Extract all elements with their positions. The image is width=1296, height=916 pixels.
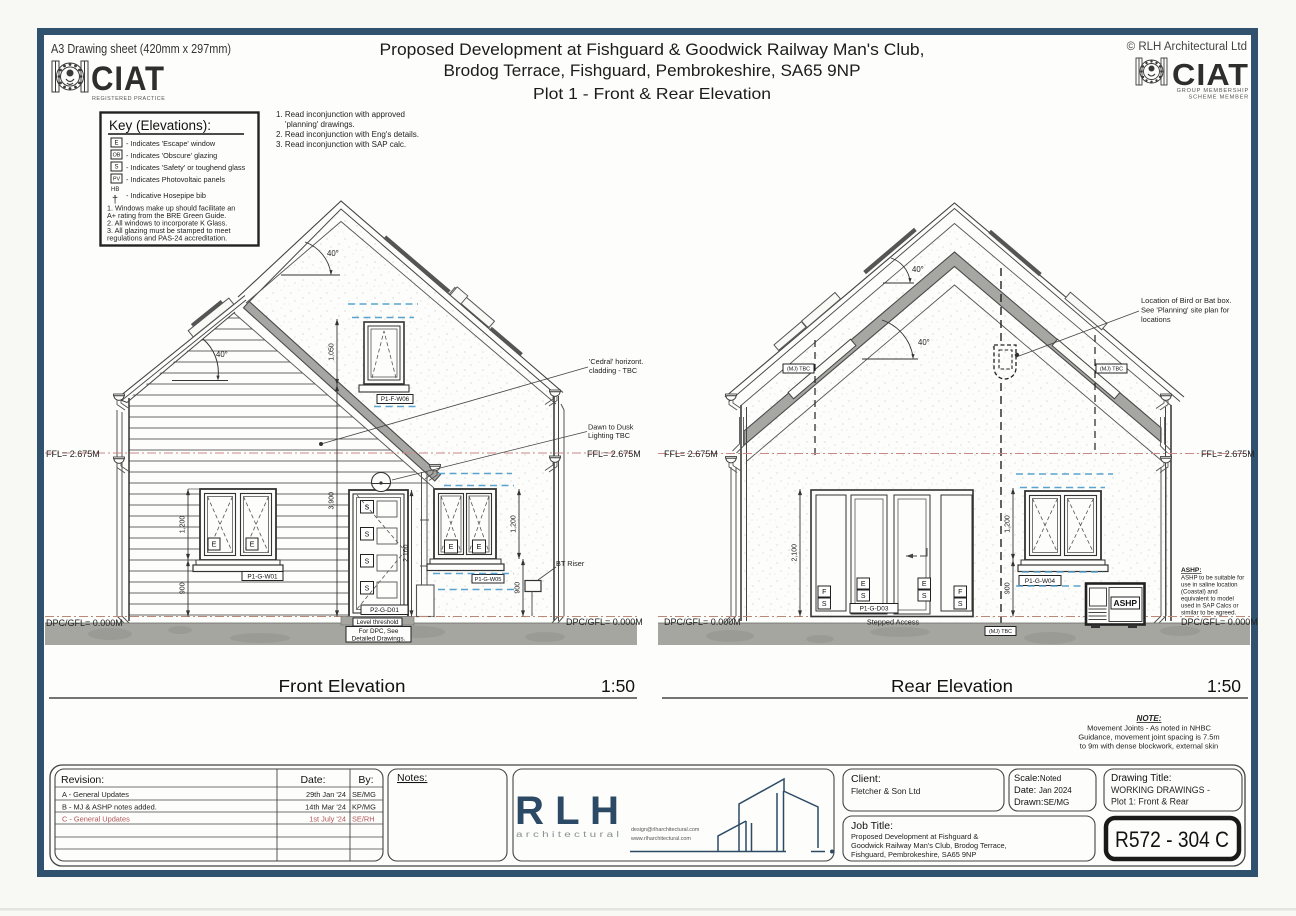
svg-text:Stepped Access: Stepped Access (867, 618, 920, 627)
svg-text:Goodwick Railway Man's Club, B: Goodwick Railway Man's Club, Brodog Terr… (851, 841, 1007, 850)
svg-text:Detailed Drawings.: Detailed Drawings. (352, 636, 406, 643)
svg-text:REGISTERED PRACTICE: REGISTERED PRACTICE (92, 96, 165, 102)
svg-text:design@rlharchitectural.com: design@rlharchitectural.com (631, 827, 700, 833)
svg-text:R572 - 304 C: R572 - 304 C (1115, 827, 1229, 852)
svg-text:Level threshold: Level threshold (357, 619, 400, 626)
svg-text:By:: By: (358, 774, 373, 786)
svg-text:A - General Updates: A - General Updates (62, 790, 129, 799)
svg-text:locations: locations (1141, 315, 1171, 324)
svg-text:ASHP to be suitable for: ASHP to be suitable for (1181, 575, 1244, 582)
svg-text:Fletcher & Son Ltd: Fletcher & Son Ltd (851, 786, 921, 796)
svg-text:C - General Updates: C - General Updates (62, 815, 130, 824)
svg-text:2,100: 2,100 (792, 544, 799, 562)
svg-text:900: 900 (180, 582, 187, 594)
svg-text:BT Riser: BT Riser (556, 559, 585, 568)
svg-text:40°: 40° (912, 265, 924, 274)
svg-text:S: S (861, 593, 866, 600)
svg-text:Rear Elevation: Rear Elevation (891, 676, 1013, 696)
svg-text:P1-F-W06: P1-F-W06 (381, 396, 410, 403)
svg-text:Revision:: Revision: (61, 774, 104, 786)
svg-text:Lighting TBC: Lighting TBC (588, 431, 630, 440)
svg-text:use in saline location: use in saline location (1181, 582, 1238, 589)
svg-text:Proposed Development at Fishgu: Proposed Development at Fishguard & (851, 832, 978, 841)
svg-text:P1-G-W01: P1-G-W01 (247, 573, 278, 580)
svg-text:B - MJ & ASHP notes added.: B - MJ & ASHP notes added. (62, 803, 157, 812)
svg-text:cladding - TBC: cladding - TBC (589, 366, 637, 375)
svg-text:DPC/GFL= 0.000M: DPC/GFL= 0.000M (46, 618, 123, 628)
svg-text:E: E (114, 141, 118, 147)
svg-text:40°: 40° (216, 350, 228, 359)
svg-text:3. Read inconjunction with SAP: 3. Read inconjunction with SAP calc. (276, 140, 406, 149)
svg-text:R L H: R L H (515, 789, 619, 833)
svg-text:equivalent to model: equivalent to model (1181, 596, 1234, 603)
svg-text:S: S (365, 558, 370, 565)
svg-text:1:50: 1:50 (601, 676, 635, 696)
svg-text:Notes:: Notes: (397, 772, 427, 784)
svg-text:similar to be agreed.: similar to be agreed. (1181, 610, 1237, 617)
svg-text:F: F (822, 589, 826, 596)
svg-text:S: S (365, 531, 370, 538)
svg-text:P1-G-W04: P1-G-W04 (1025, 578, 1056, 585)
svg-text:FFL= 2.675M: FFL= 2.675M (664, 449, 718, 459)
svg-text:40°: 40° (327, 249, 339, 258)
svg-text:1,200: 1,200 (511, 515, 518, 533)
svg-text:(MJ) TBC: (MJ) TBC (989, 629, 1012, 635)
svg-text:HB: HB (111, 187, 119, 193)
svg-text:29th Jan '24: 29th Jan '24 (306, 790, 346, 799)
svg-text:PV: PV (113, 176, 121, 182)
svg-text:used in SAP Calcs or: used in SAP Calcs or (1181, 603, 1238, 610)
svg-text:See 'Planning' site plan for: See 'Planning' site plan for (1141, 306, 1230, 315)
svg-text:Front Elevation: Front Elevation (279, 676, 406, 696)
svg-text:to 9m with dense blockwork, ex: to 9m with dense blockwork, external ski… (1080, 742, 1218, 751)
svg-text:a r c h i t e c t u r a l: a r c h i t e c t u r a l (516, 830, 619, 839)
svg-text:1,050: 1,050 (329, 343, 336, 361)
svg-text:- Indicates 'Obscure' glazing: - Indicates 'Obscure' glazing (126, 151, 217, 160)
svg-text:900: 900 (515, 582, 522, 594)
svg-text:1. Read inconjunction with app: 1. Read inconjunction with approved (276, 110, 405, 119)
svg-text:E: E (476, 542, 481, 551)
svg-text:Key (Elevations):: Key (Elevations): (109, 118, 211, 133)
svg-text:(Coastal) and: (Coastal) and (1181, 589, 1218, 596)
svg-text:P1-G-W05: P1-G-W05 (475, 577, 502, 583)
svg-text:1,200: 1,200 (1005, 515, 1012, 533)
svg-text:3,900: 3,900 (329, 492, 336, 510)
svg-text:- Indicates Photovoltaic panel: - Indicates Photovoltaic panels (126, 175, 225, 184)
svg-text:S: S (365, 585, 370, 592)
svg-text:A3 Drawing sheet (420mm x 297m: A3 Drawing sheet (420mm x 297mm) (51, 42, 231, 56)
svg-text:- Indicative Hosepipe bib: - Indicative Hosepipe bib (126, 191, 206, 200)
svg-text:ASHP:: ASHP: (1181, 567, 1202, 574)
svg-text:FFL= 2.675M: FFL= 2.675M (46, 449, 100, 459)
svg-text:- Indicates 'Escape' window: - Indicates 'Escape' window (126, 139, 216, 148)
svg-text:SE/RH: SE/RH (352, 815, 375, 824)
svg-text:1:50: 1:50 (1207, 676, 1241, 696)
svg-text:S: S (922, 593, 927, 600)
svg-text:KP/MG: KP/MG (352, 803, 376, 812)
svg-text:NOTE:: NOTE: (1137, 714, 1162, 723)
svg-text:P2-G-D01: P2-G-D01 (370, 607, 399, 614)
svg-text:FFL= 2.675M: FFL= 2.675M (1201, 449, 1255, 459)
svg-text:P1-G-D03: P1-G-D03 (860, 606, 889, 613)
svg-text:E: E (922, 581, 927, 588)
svg-text:(MJ) TBC: (MJ) TBC (787, 366, 810, 372)
svg-text:1st July '24: 1st July '24 (309, 815, 346, 824)
svg-text:Scale:Noted: Scale:Noted (1014, 773, 1061, 783)
svg-text:Plot 1: Front & Rear: Plot 1: Front & Rear (1111, 797, 1189, 807)
svg-text:2. Read inconjunction with Eng: 2. Read inconjunction with Eng's details… (276, 130, 419, 139)
svg-text:Proposed Development at Fishgu: Proposed Development at Fishguard & Good… (380, 40, 925, 59)
svg-text:For DPC, See: For DPC, See (359, 628, 399, 635)
svg-text:E: E (249, 540, 254, 549)
svg-text:SCHEME MEMBER: SCHEME MEMBER (1189, 95, 1249, 101)
svg-text:Date: Jan 2024: Date: Jan 2024 (1014, 785, 1072, 795)
svg-text:(MJ) TBC: (MJ) TBC (1100, 366, 1123, 372)
svg-text:F: F (958, 589, 962, 596)
svg-text:Guidance, movement joint spaci: Guidance, movement joint spacing is 7.5m (1078, 733, 1219, 742)
svg-text:regulations and PAS-24 accredi: regulations and PAS-24 accreditation. (107, 234, 227, 243)
svg-text:900: 900 (1005, 582, 1012, 594)
svg-text:14th Mar '24: 14th Mar '24 (305, 803, 346, 812)
svg-text:Job Title:: Job Title: (851, 820, 893, 832)
svg-text:Date:: Date: (300, 774, 325, 786)
svg-text:ASHP: ASHP (1113, 598, 1137, 608)
svg-text:DPC/GFL= 0.000M: DPC/GFL= 0.000M (1181, 617, 1258, 627)
svg-text:Movement Joints - As noted in: Movement Joints - As noted in NHBC (1087, 724, 1211, 733)
svg-text:© RLH Architectural Ltd: © RLH Architectural Ltd (1127, 41, 1247, 53)
svg-text:SE/MG: SE/MG (352, 790, 376, 799)
svg-text:Fishguard, Pembrokeshire, SA65: Fishguard, Pembrokeshire, SA65 9NP (851, 850, 976, 859)
svg-text:CIAT: CIAT (91, 60, 165, 98)
svg-text:CIAT: CIAT (1172, 57, 1249, 92)
svg-text:E: E (211, 540, 216, 549)
svg-text:Location of Bird or Bat box.: Location of Bird or Bat box. (1141, 296, 1231, 305)
svg-text:Brodog Terrace, Fishguard, Pem: Brodog Terrace, Fishguard, Pembrokeshire… (444, 61, 861, 80)
svg-text:2,100: 2,100 (403, 544, 410, 562)
svg-text:GROUP MEMBERSHIP: GROUP MEMBERSHIP (1177, 88, 1249, 94)
svg-text:www.rlharchitectural.com: www.rlharchitectural.com (630, 836, 691, 842)
svg-text:E: E (448, 542, 453, 551)
svg-text:Client:: Client: (851, 773, 881, 785)
svg-text:40°: 40° (918, 338, 930, 347)
svg-text:1,200: 1,200 (180, 516, 187, 534)
svg-text:FFL= 2.675M: FFL= 2.675M (587, 449, 641, 459)
svg-text:WORKING DRAWINGS -: WORKING DRAWINGS - (1111, 785, 1210, 795)
svg-text:E: E (861, 581, 866, 588)
svg-text:Plot 1 - Front & Rear Elevatio: Plot 1 - Front & Rear Elevation (533, 86, 771, 103)
svg-text:'planning' drawings.: 'planning' drawings. (285, 120, 355, 129)
svg-text:S: S (958, 601, 963, 608)
svg-text:OB: OB (113, 152, 121, 158)
svg-text:DPC/GFL= 0.000M: DPC/GFL= 0.000M (566, 617, 643, 627)
svg-text:S: S (822, 601, 827, 608)
svg-text:Drawing Title:: Drawing Title: (1111, 773, 1172, 784)
svg-text:- Indicates 'Safety' or toughe: - Indicates 'Safety' or toughend glass (126, 163, 246, 172)
svg-text:DPC/GFL= 0.000M: DPC/GFL= 0.000M (664, 617, 741, 627)
svg-text:Drawn:SE/MG: Drawn:SE/MG (1014, 797, 1069, 807)
svg-text:'Cedral' horizont.: 'Cedral' horizont. (589, 357, 643, 366)
svg-text:S: S (114, 165, 118, 171)
